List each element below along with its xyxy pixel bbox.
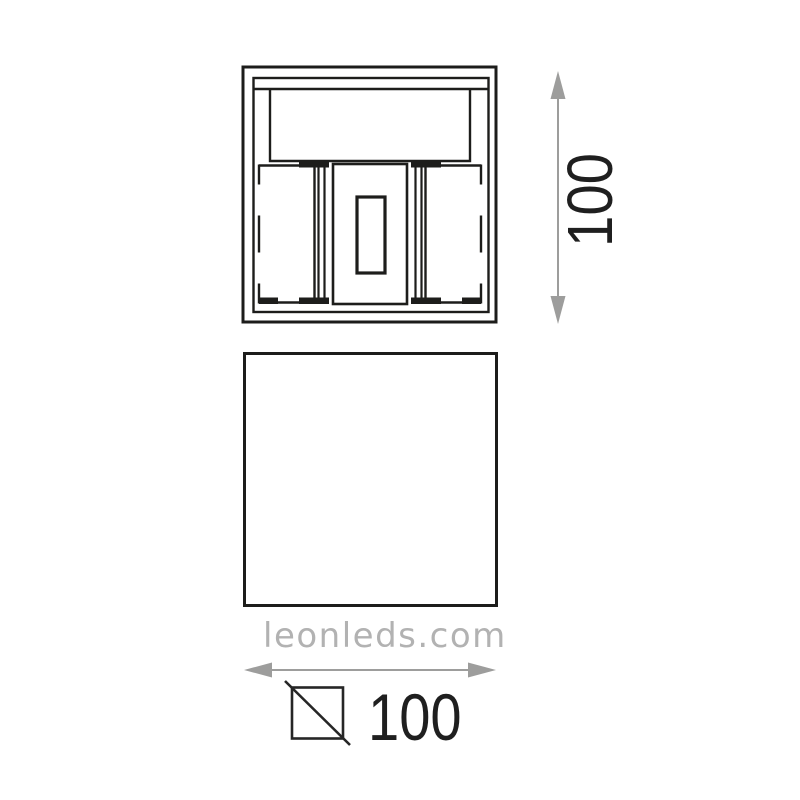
- dimension-diagram-page: 100 100 leonleds.com: [0, 0, 800, 800]
- left-bracket-panel: [259, 166, 315, 303]
- width-dimension: 100: [244, 663, 496, 755]
- mounting-plate: [333, 164, 407, 304]
- front-view-drawing: [245, 354, 497, 606]
- arrow-left-icon: [244, 663, 272, 678]
- mounting-clip-marks: [259, 161, 481, 304]
- height-dimension-label: 100: [554, 153, 626, 247]
- arrow-right-icon: [468, 663, 496, 678]
- top-view-drawing: [243, 67, 496, 322]
- top-view-inner-square: [254, 78, 489, 312]
- right-bracket-panel: [426, 166, 482, 303]
- arrow-down-icon: [551, 296, 566, 324]
- top-view-outer-square: [243, 67, 496, 322]
- height-dimension: 100: [551, 71, 626, 324]
- mounting-slot: [357, 197, 385, 273]
- front-view-square: [245, 354, 497, 606]
- lens-opening-band: [270, 89, 470, 161]
- width-dimension-label: 100: [368, 681, 462, 754]
- watermark: leonleds.com: [263, 616, 507, 656]
- arrow-up-icon: [551, 71, 566, 99]
- square-section-symbol-icon: [285, 681, 350, 745]
- dimension-diagram: 100 100 leonleds.com: [0, 0, 800, 800]
